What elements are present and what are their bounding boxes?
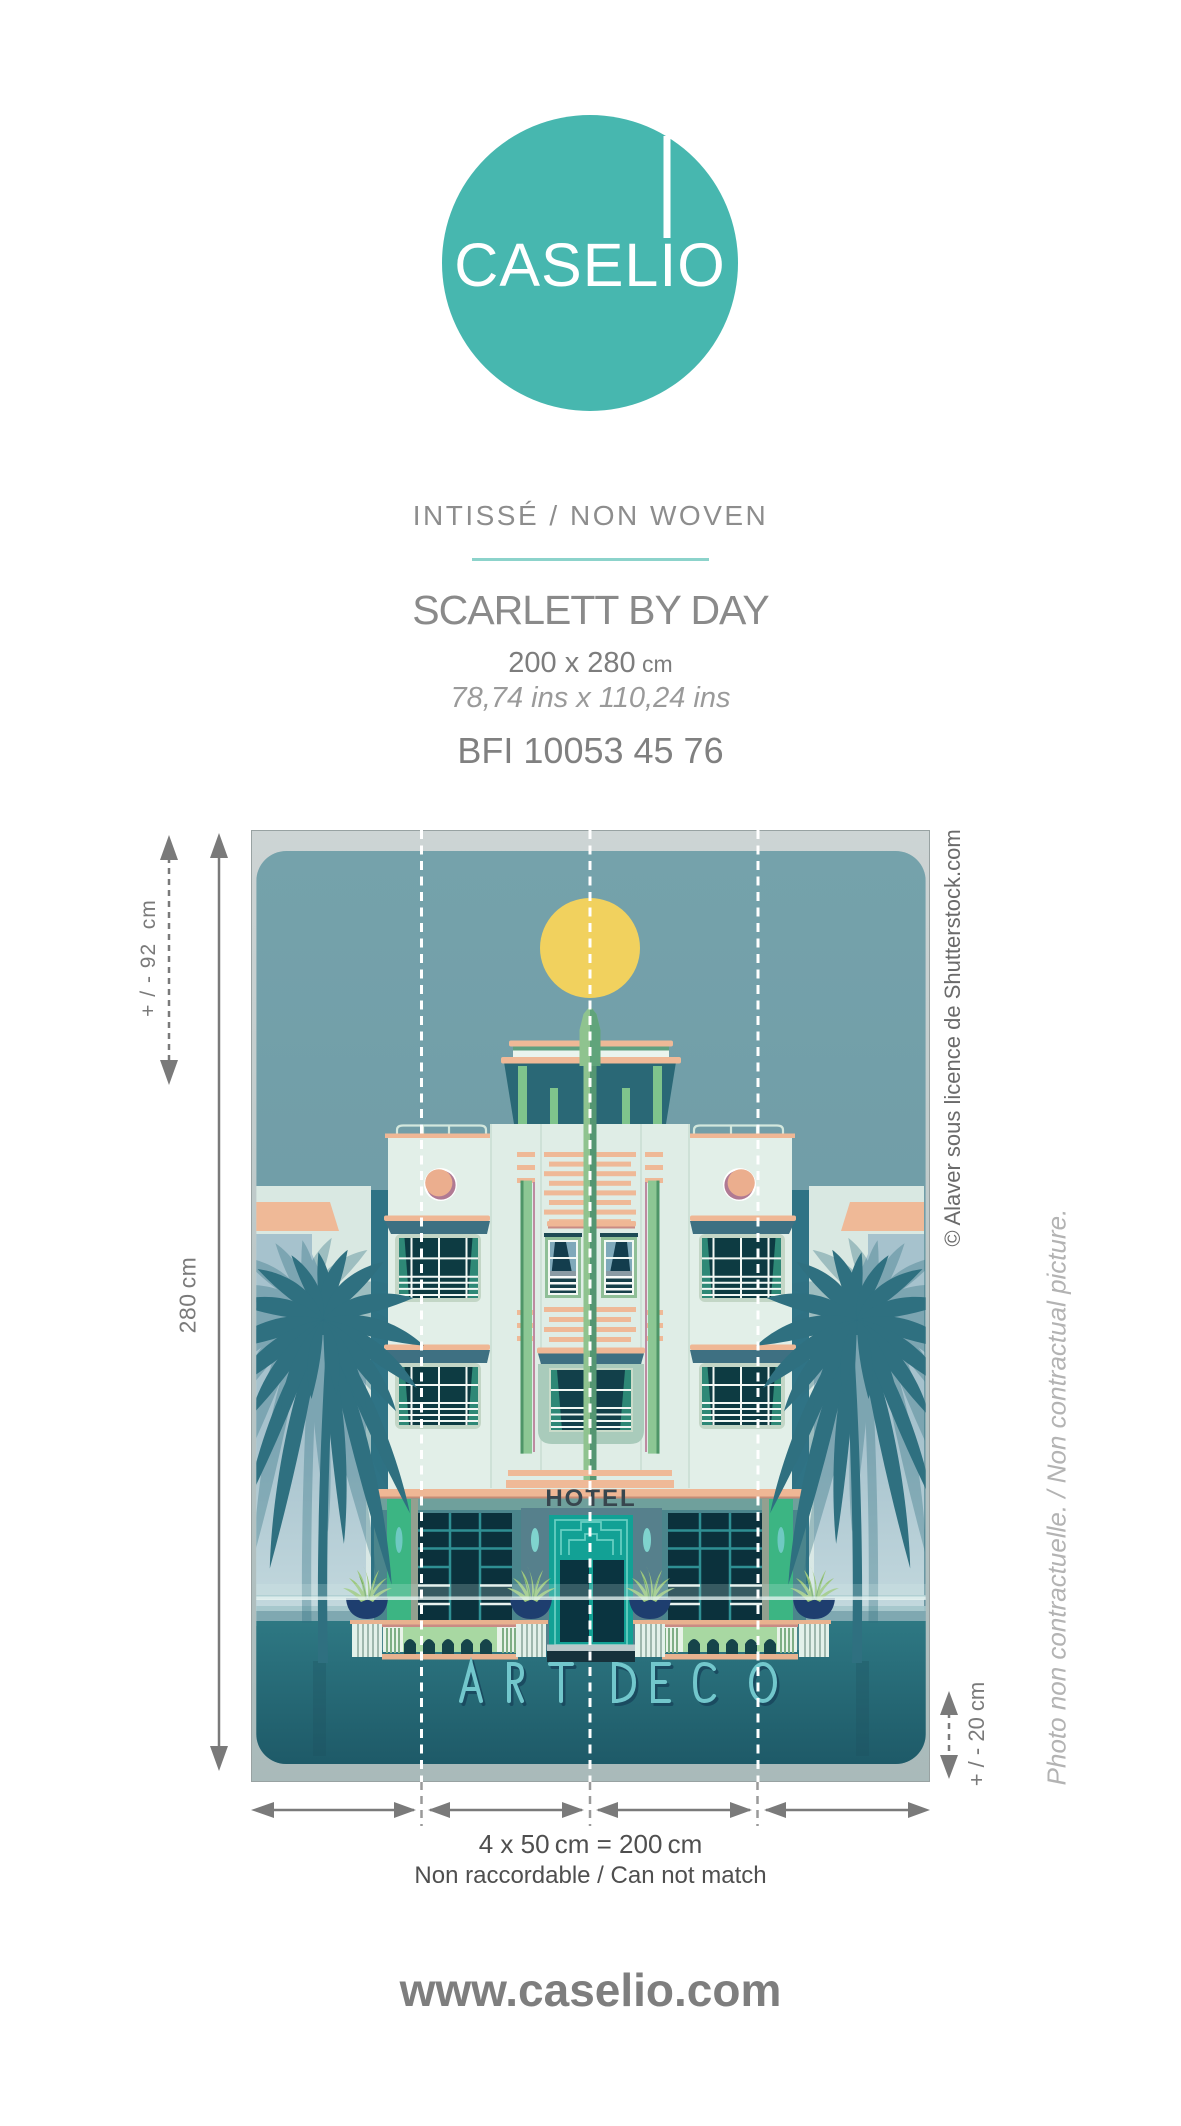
svg-text:CASELIO: CASELIO: [454, 231, 725, 299]
